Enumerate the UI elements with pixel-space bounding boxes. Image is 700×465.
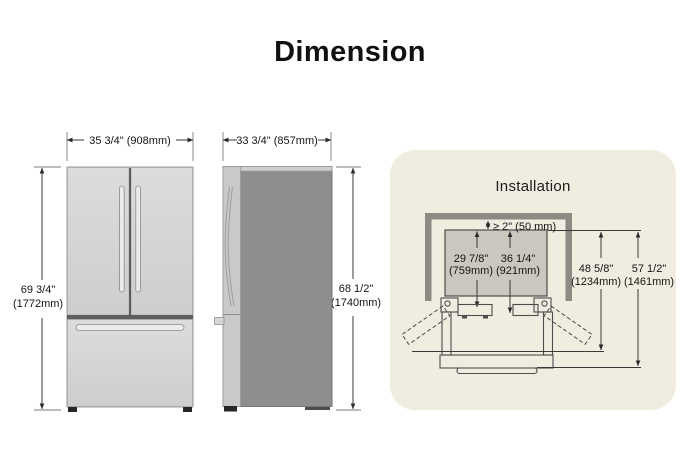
- dimension-diagram: 35 3/4" (908mm) 69 3/4" (1772mm): [0, 0, 700, 465]
- fridge-front: [67, 167, 193, 412]
- cabinet-depth-label-in: 29 7/8": [454, 253, 489, 265]
- side-depth-dimension: 33 3/4" (857mm): [223, 132, 331, 161]
- door-foot: [483, 316, 488, 319]
- front-height-dimension: 69 3/4" (1772mm): [13, 167, 63, 410]
- front-left-foot: [68, 407, 77, 412]
- freezer-drawer: [68, 320, 193, 407]
- side-height-dimension: 68 1/2" (1740mm): [331, 167, 381, 410]
- front-height-label-in: 69 3/4": [21, 284, 56, 296]
- total-depth-label-mm: (1461mm): [624, 276, 674, 288]
- front-width-label: 35 3/4" (908mm): [89, 135, 171, 147]
- installation-panel: Installation ≥ 2" (50 mm) 29 7/8" (759mm…: [390, 150, 676, 410]
- total-depth-label-in: 57 1/2": [632, 263, 667, 275]
- drawer-separator: [67, 315, 193, 320]
- front-view: 35 3/4" (908mm) 69 3/4" (1772mm): [13, 132, 193, 412]
- drawer-handle: [76, 325, 184, 331]
- side-drawer-handle: [215, 318, 225, 325]
- right-door-handle: [136, 186, 141, 292]
- door-gap: [129, 168, 131, 315]
- side-height-label-in: 68 1/2": [339, 283, 374, 295]
- fridge-side: [215, 167, 333, 412]
- door-depth-label-in: 36 1/4": [501, 253, 536, 265]
- door-depth-label-mm: (921mm): [496, 265, 540, 277]
- front-right-foot: [183, 407, 192, 412]
- side-depth-label: 33 3/4" (857mm): [236, 135, 318, 147]
- door-open-depth-label-in: 48 5/8": [579, 263, 614, 275]
- front-height-label-mm: (1772mm): [13, 298, 63, 310]
- front-width-dimension: 35 3/4" (908mm): [67, 132, 193, 161]
- left-door-handle: [120, 186, 125, 292]
- rear-clearance-dimension: ≥ 2" (50 mm): [488, 221, 556, 233]
- cabinet-depth-label-mm: (759mm): [449, 265, 493, 277]
- door-open-depth-label-mm: (1234mm): [571, 276, 621, 288]
- side-view: 33 3/4" (857mm) 68 1/2" (1740mm): [215, 132, 382, 412]
- screenshot-root: Dimension 35 3/4" (908mm): [0, 0, 700, 465]
- side-height-label-mm: (1740mm): [331, 297, 381, 309]
- side-front-foot: [224, 406, 237, 412]
- installation-title: Installation: [495, 178, 570, 195]
- rear-clearance-label: ≥ 2" (50 mm): [493, 221, 556, 233]
- door-foot: [462, 316, 467, 319]
- side-door-edge: [223, 167, 241, 407]
